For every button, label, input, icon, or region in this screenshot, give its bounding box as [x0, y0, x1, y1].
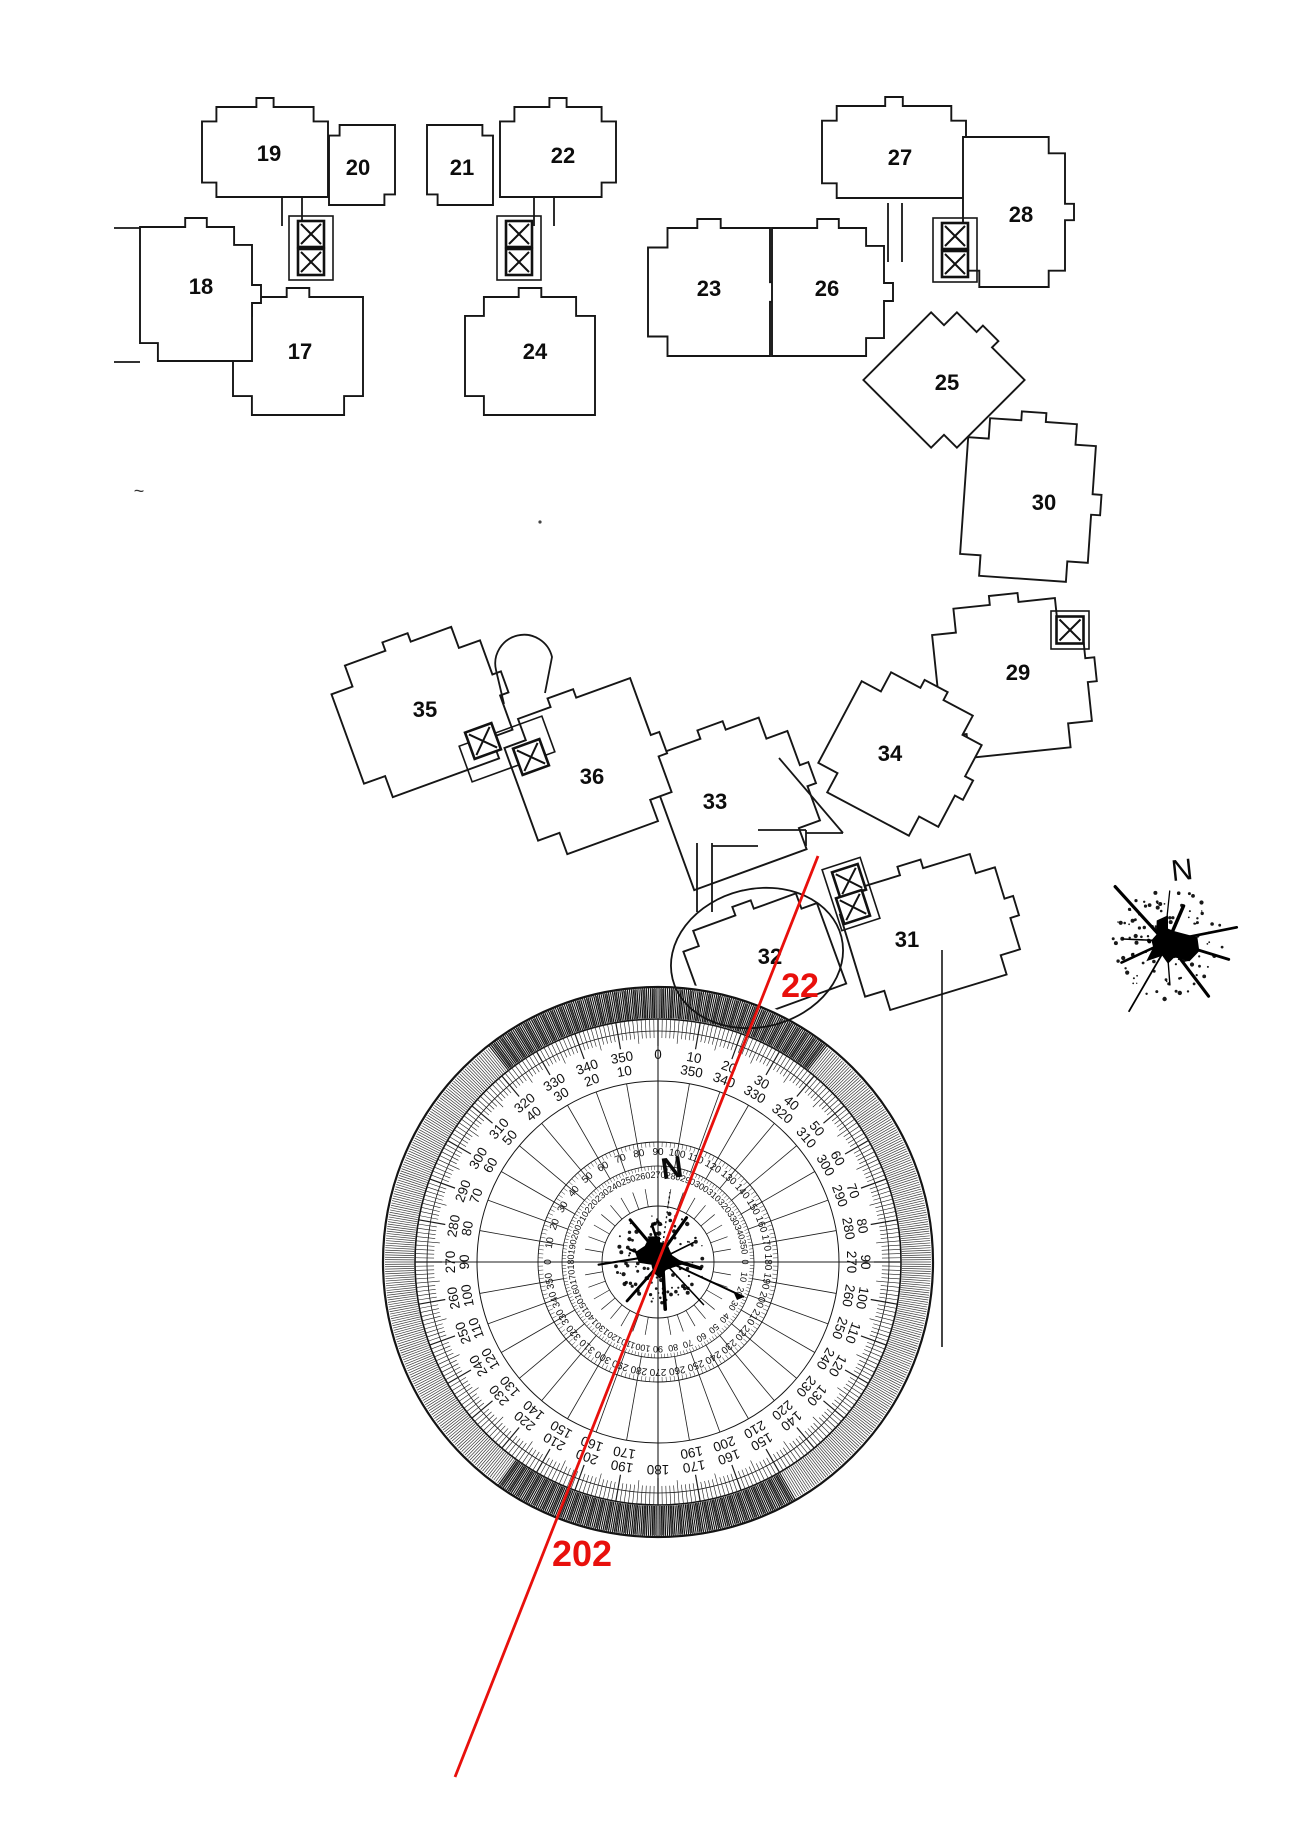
elevator-icon-3 [506, 249, 532, 275]
site-plan-drawing: 1718192021222324252627282930313233343536… [0, 0, 1308, 1824]
inner-label-90: 0 [740, 1259, 750, 1264]
elevator-icon-4 [942, 223, 968, 249]
room-label-31: 31 [895, 927, 919, 952]
room-22: 22 [500, 98, 616, 197]
outer-label2-270: 90 [457, 1254, 472, 1269]
room-label-18: 18 [189, 274, 213, 299]
room-label-24: 24 [523, 339, 548, 364]
outer-label-180: 180 [647, 1462, 670, 1477]
outer-label-270: 270 [443, 1251, 458, 1274]
room-19: 19 [202, 98, 328, 197]
room-21: 21 [427, 125, 493, 205]
middle-label-180: 270 [649, 1366, 666, 1377]
room-30: 30 [960, 411, 1101, 581]
stray-tilde-mark: ~ [134, 481, 145, 501]
north-star-scribble [1112, 887, 1237, 1012]
north-letter: N [1170, 853, 1195, 888]
middle-label-270: 0 [543, 1259, 554, 1265]
room-27: 27 [822, 97, 966, 198]
room-label-19: 19 [257, 141, 281, 166]
elevator-icon-1 [298, 249, 324, 275]
room-35: 35 [332, 627, 513, 797]
elevator-icon-2 [506, 221, 532, 247]
room-33: 33 [646, 718, 820, 891]
room-label-17: 17 [288, 339, 312, 364]
room-24: 24 [465, 288, 595, 415]
inner-label-180: 90 [653, 1344, 663, 1354]
room-label-33: 33 [703, 789, 727, 814]
inner-label-270: 180 [566, 1254, 576, 1269]
stray-dot [538, 520, 541, 523]
outer-label2-350: 10 [616, 1063, 633, 1080]
outer-label-90: 90 [858, 1254, 873, 1269]
room-label-28: 28 [1009, 202, 1033, 227]
floor-plan: 1718192021222324252627282930313233343536 [114, 97, 1102, 1027]
middle-label-90: 180 [762, 1254, 773, 1271]
room-label-23: 23 [697, 276, 721, 301]
room-label-27: 27 [888, 145, 912, 170]
outer-label2-90: 270 [844, 1251, 859, 1274]
room-20: 20 [329, 125, 395, 205]
room-label-20: 20 [346, 155, 370, 180]
room-label-35: 35 [413, 697, 437, 722]
room-18: 18 [140, 218, 261, 361]
outer-label2-280: 80 [459, 1220, 476, 1237]
room-28: 28 [963, 137, 1074, 287]
room-outline-33 [646, 718, 820, 891]
site-plan-page: 1718192021222324252627282930313233343536… [0, 0, 1308, 1824]
room-label-22: 22 [551, 143, 575, 168]
north-arrow: N [1112, 853, 1237, 1011]
room-label-30: 30 [1032, 490, 1056, 515]
elevator-icon-0 [298, 221, 324, 247]
inner-label-100: 10 [738, 1271, 750, 1283]
room-label-34: 34 [878, 741, 903, 766]
elevator-icon-5 [942, 251, 968, 277]
room-label-26: 26 [815, 276, 839, 301]
bearing-label-top: 22 [781, 967, 819, 1005]
outer-label-0: 0 [654, 1047, 662, 1062]
inner-label-170: 80 [667, 1342, 679, 1354]
room-label-36: 36 [580, 764, 604, 789]
room-23: 23 [648, 219, 779, 356]
room-label-21: 21 [450, 155, 474, 180]
bearing-label-bottom: 202 [552, 1533, 612, 1574]
room-label-29: 29 [1006, 660, 1030, 685]
room-label-25: 25 [935, 370, 959, 395]
protractor-north-letter: N [659, 1151, 685, 1187]
room-26: 26 [772, 219, 893, 356]
elevator-icon-6 [1057, 617, 1084, 644]
